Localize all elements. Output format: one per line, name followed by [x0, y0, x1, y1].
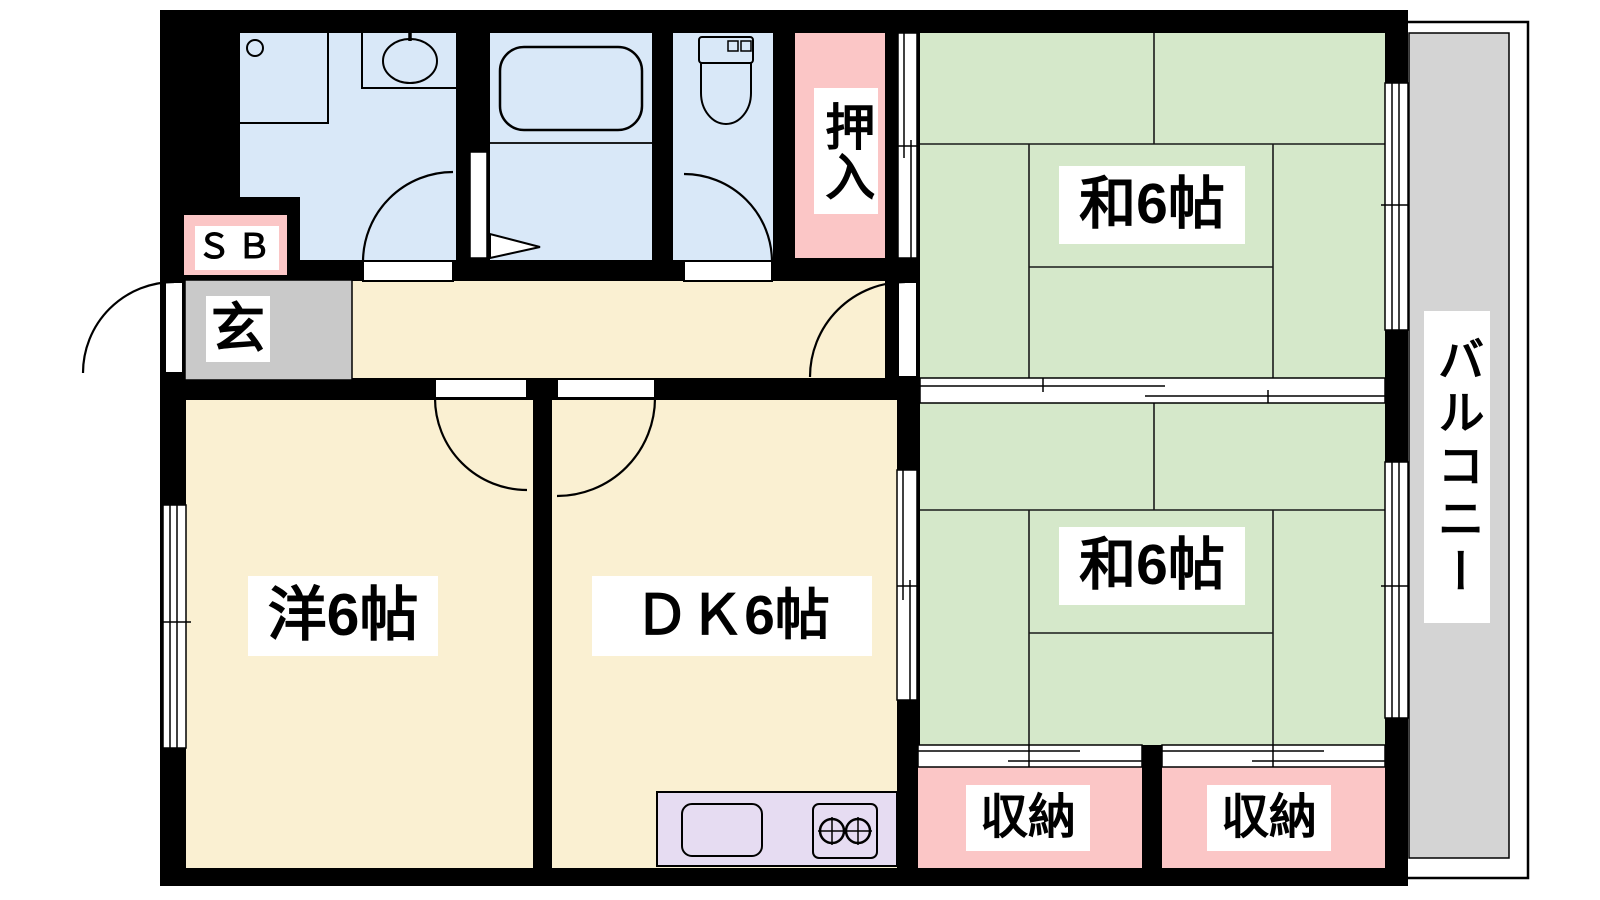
sliding-partition	[920, 378, 1385, 403]
storage-right-label: 収納	[1207, 785, 1331, 851]
floor-plan: ＳＢ 玄 押入 和6帖 和6帖 洋6帖 ＤＫ6帖 収納 収納 バルコニー	[0, 0, 1600, 900]
entrance-door	[83, 282, 183, 373]
western-room-label: 洋6帖	[248, 576, 438, 656]
closet-fusuma-track	[898, 33, 917, 258]
japanese-room-1-label: 和6帖	[1059, 166, 1245, 244]
shoe-box-label: ＳＢ	[195, 226, 279, 270]
closet-label: 押入	[814, 88, 878, 214]
balcony-window-lower	[1381, 462, 1408, 718]
storage-left-label: 収納	[966, 785, 1090, 851]
balcony-label: バルコニー	[1424, 311, 1490, 623]
dining-kitchen-label: ＤＫ6帖	[592, 576, 872, 656]
hallway-floor	[352, 281, 885, 378]
toilet-floor	[673, 33, 773, 260]
storage-left-track	[918, 745, 1142, 767]
bathroom-door	[470, 152, 487, 258]
dk-tatami-sliding-door	[897, 470, 917, 700]
japanese-room-2-label: 和6帖	[1059, 527, 1245, 605]
entrance-label: 玄	[206, 296, 270, 362]
floor-plan-drawing	[0, 0, 1600, 900]
storage-right-track	[1162, 745, 1385, 767]
bathroom-floor	[490, 33, 652, 260]
balcony-window-upper	[1381, 83, 1408, 330]
